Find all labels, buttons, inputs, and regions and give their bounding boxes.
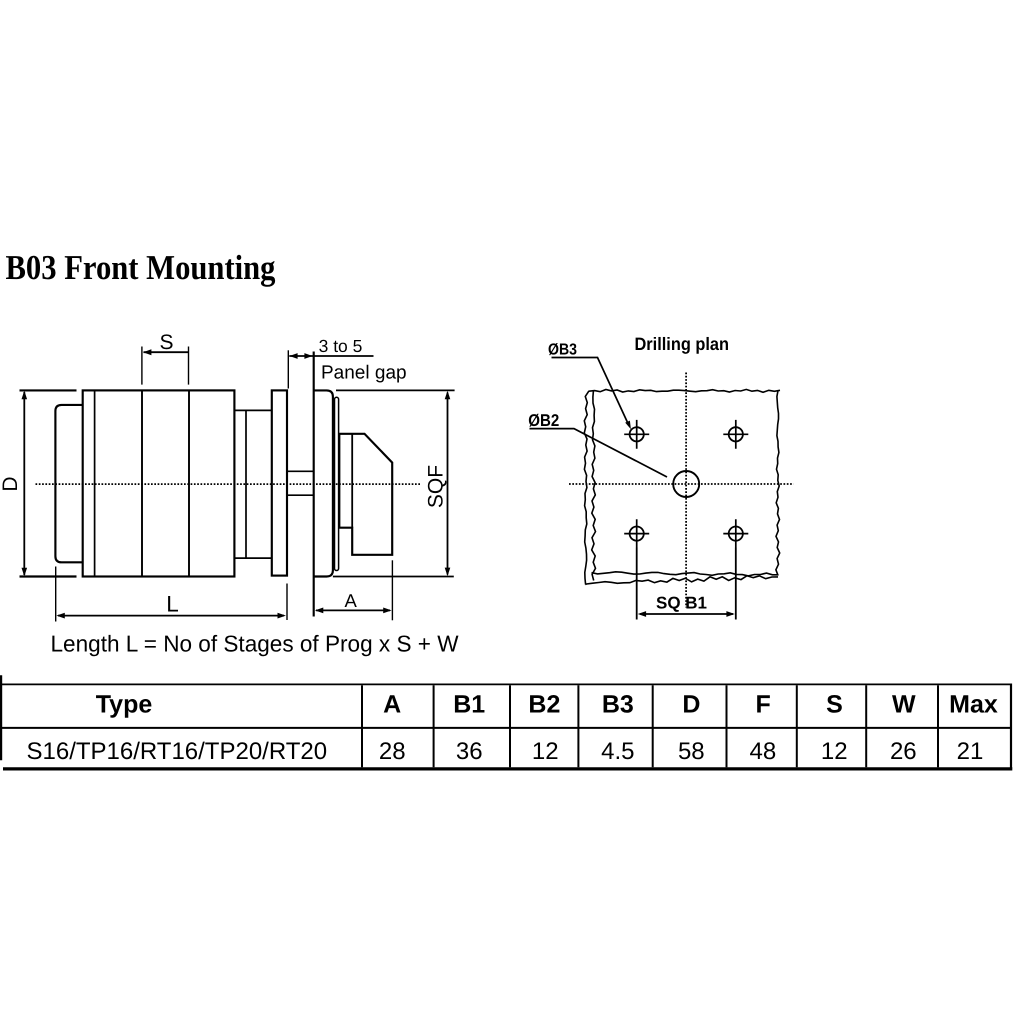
svg-text:Panel gap: Panel gap [321,362,407,383]
svg-text:S: S [159,331,173,354]
svg-text:S16/TP16/RT16/TP20/RT20: S16/TP16/RT16/TP20/RT20 [26,738,327,765]
svg-text:B2: B2 [528,690,560,718]
svg-text:3 to 5: 3 to 5 [319,336,363,356]
svg-text:D: D [682,690,700,718]
svg-text:26: 26 [890,738,917,765]
svg-text:Type: Type [96,690,153,718]
svg-text:4.5: 4.5 [601,738,634,765]
svg-text:SQ B1: SQ B1 [656,594,707,613]
svg-text:Max: Max [949,690,998,718]
svg-text:F: F [756,690,771,718]
svg-text:12: 12 [532,738,559,765]
svg-text:58: 58 [678,738,705,765]
svg-text:48: 48 [750,738,777,765]
svg-text:Drilling plan: Drilling plan [635,334,730,354]
svg-text:ØB3: ØB3 [548,342,577,359]
svg-text:28: 28 [379,738,406,765]
svg-text:L: L [166,592,179,617]
svg-text:Length L = No of Stages of Pro: Length L = No of Stages of Prog x S + W [51,631,459,657]
svg-text:S: S [826,690,843,718]
svg-text:W: W [892,690,916,718]
svg-text:12: 12 [821,738,848,765]
svg-text:36: 36 [456,738,483,765]
svg-text:SQF: SQF [425,465,448,508]
svg-text:A: A [383,690,401,718]
svg-text:B1: B1 [453,690,485,718]
svg-text:21: 21 [957,738,984,765]
svg-text:A: A [345,590,358,611]
svg-text:ØB2: ØB2 [528,411,559,430]
svg-text:D: D [0,476,22,491]
svg-text:B03 Front Mounting: B03 Front Mounting [6,248,276,287]
svg-text:B3: B3 [602,690,634,718]
